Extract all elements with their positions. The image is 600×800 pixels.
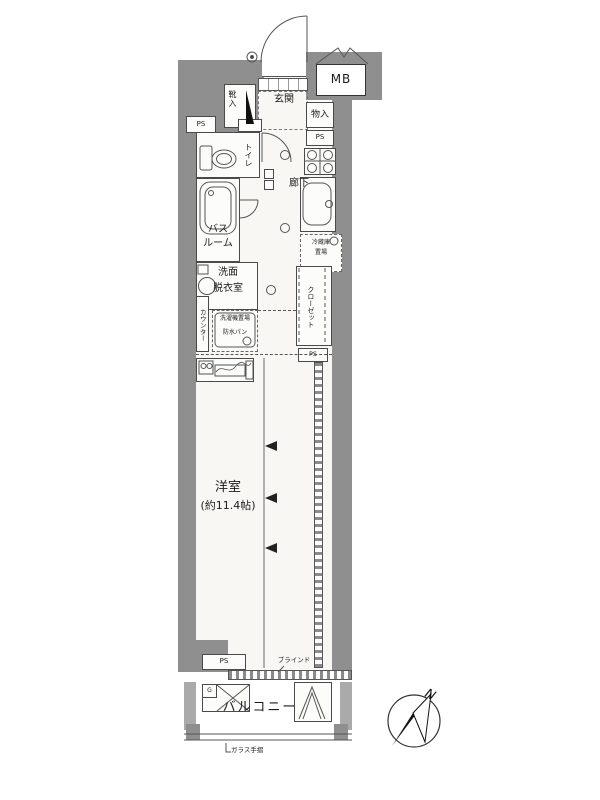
meter-box: MB xyxy=(316,64,366,96)
entrance-label: 玄関 xyxy=(262,94,306,105)
ps-label: PS xyxy=(220,658,229,666)
fridge-label-2: 置場 xyxy=(300,250,342,257)
meter-box-label: MB xyxy=(331,73,352,86)
compass-circle xyxy=(388,695,440,747)
pipe-space-bottom: PS xyxy=(202,654,246,670)
entrance-door-opening xyxy=(262,60,306,77)
balcony-label: バルコニー xyxy=(213,701,307,716)
washroom-label-2: 脱衣室 xyxy=(198,283,258,294)
bathroom xyxy=(196,178,240,262)
boundary-dash-washroom xyxy=(258,310,296,311)
storage-label: 物入 xyxy=(311,110,329,120)
ps-label: PS xyxy=(197,121,206,129)
washroom-label-1: 洗面 xyxy=(200,267,256,278)
compass-north-label: N xyxy=(422,686,438,704)
boundary-dash-room xyxy=(196,354,332,355)
balcony-post-right xyxy=(334,724,348,740)
wall-left xyxy=(178,132,196,672)
entrance-door-arc xyxy=(261,16,307,62)
pipe-space-closet: PS xyxy=(298,348,328,362)
bathroom-label-1: バス xyxy=(200,224,236,235)
shoe-cabinet-label: 靴入 xyxy=(227,90,236,108)
window-blind-side xyxy=(314,362,323,668)
water-heater-mark-box: G xyxy=(202,684,217,698)
floorplan-canvas: MB 玄関 靴入 PS トイレ 物入 PS 冷蔵庫 置場 廊下 バス ルーム 洗… xyxy=(0,0,600,800)
window-blind-bottom xyxy=(228,670,352,680)
pipe-space-kitchen: PS xyxy=(306,130,334,146)
glass-railing-label: ガラス手摺 xyxy=(231,747,283,754)
compass: N xyxy=(388,686,440,747)
balcony-railing-lines xyxy=(184,734,352,740)
laundry-label-1: 洗濯機置場 xyxy=(214,316,256,323)
toilet-label: トイレ xyxy=(243,136,252,174)
panel-box-lower xyxy=(264,180,274,190)
room-size-label: (約11.4帖) xyxy=(189,500,267,512)
storage-box: 物入 xyxy=(306,102,334,128)
doorbell-dot xyxy=(251,56,254,59)
pipe-space-top-left: PS xyxy=(186,116,216,133)
balcony-wall-left xyxy=(184,682,196,730)
balcony-wall-right xyxy=(340,682,352,730)
panel-box-upper xyxy=(264,169,274,179)
water-heater-label: G xyxy=(207,688,212,695)
hallway-label: 廊下 xyxy=(284,178,314,189)
bathroom-label-2: ルーム xyxy=(197,238,239,249)
room-counter xyxy=(196,358,254,382)
laundry-label-2: 防水パン xyxy=(214,330,256,337)
counter-label: カウンター xyxy=(198,299,205,351)
room-name-label: 洋室 xyxy=(196,481,260,496)
blind-label: ブラインド xyxy=(272,657,316,664)
closet-label: クローゼット xyxy=(306,272,314,342)
compass-needle-light xyxy=(413,694,431,742)
fridge-label-1: 冷蔵庫 xyxy=(300,240,342,247)
entrance-shoe-shelf xyxy=(258,78,308,91)
stove xyxy=(304,148,336,175)
small-panel-box xyxy=(238,119,262,132)
ps-label: PS xyxy=(316,134,325,142)
compass-needle-dark xyxy=(392,694,431,746)
balcony-post-left xyxy=(186,724,200,740)
